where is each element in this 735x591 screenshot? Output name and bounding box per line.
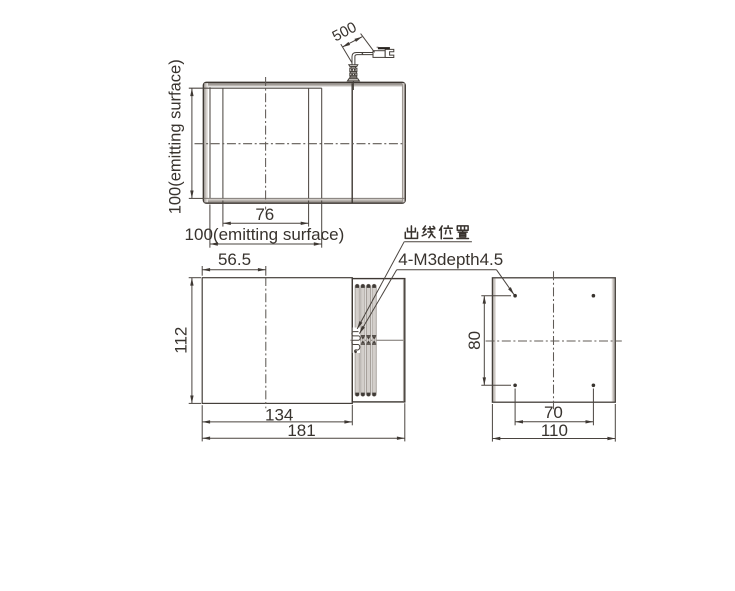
svg-text:80: 80 bbox=[465, 331, 484, 350]
svg-text:110: 110 bbox=[541, 421, 568, 440]
svg-text:100(emitting surface): 100(emitting surface) bbox=[185, 225, 345, 244]
svg-text:56.5: 56.5 bbox=[218, 250, 251, 269]
svg-text:181: 181 bbox=[287, 421, 315, 440]
svg-text:112: 112 bbox=[171, 327, 190, 354]
svg-text:76: 76 bbox=[255, 205, 274, 224]
svg-text:100(emitting surface): 100(emitting surface) bbox=[167, 59, 185, 214]
svg-text:500: 500 bbox=[329, 19, 359, 46]
svg-text:4-M3depth4.5: 4-M3depth4.5 bbox=[398, 250, 503, 269]
svg-text:70: 70 bbox=[544, 403, 563, 422]
